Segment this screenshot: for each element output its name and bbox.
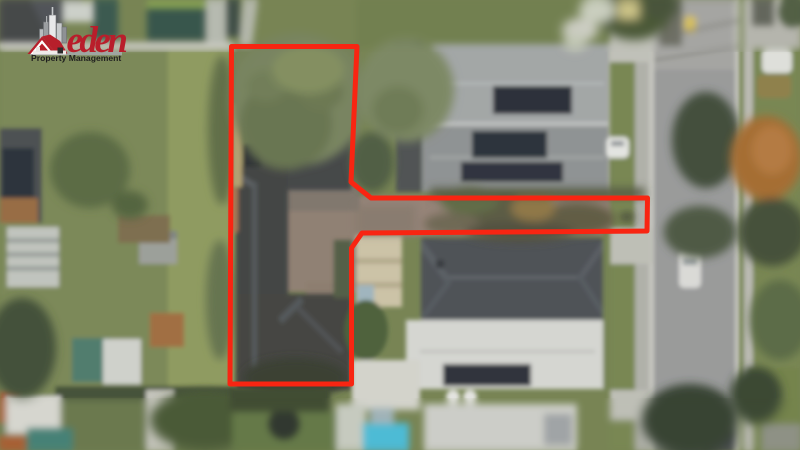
svg-text:Property Management: Property Management	[31, 53, 121, 63]
